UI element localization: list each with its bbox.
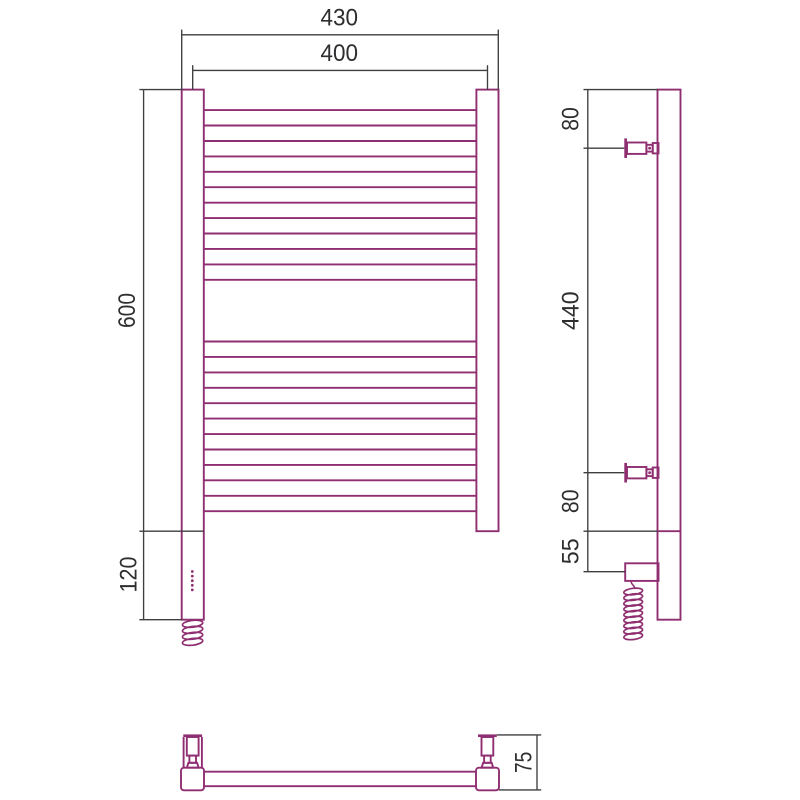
svg-text:120: 120 [115, 557, 142, 593]
svg-text:55: 55 [557, 538, 584, 564]
svg-text:600: 600 [114, 293, 141, 328]
svg-text:80: 80 [557, 490, 584, 514]
svg-text:440: 440 [557, 291, 584, 330]
svg-text:400: 400 [321, 40, 359, 67]
svg-text:75: 75 [510, 752, 537, 773]
svg-text:430: 430 [321, 5, 359, 32]
svg-text:80: 80 [557, 107, 584, 131]
